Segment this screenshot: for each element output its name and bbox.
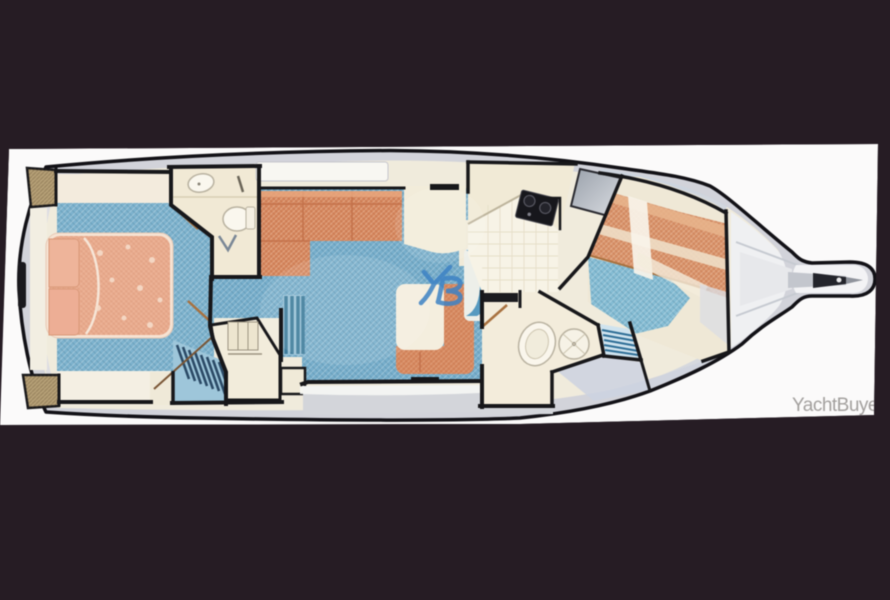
svg-text:YachtBuyer: YachtBuyer [792, 395, 885, 416]
